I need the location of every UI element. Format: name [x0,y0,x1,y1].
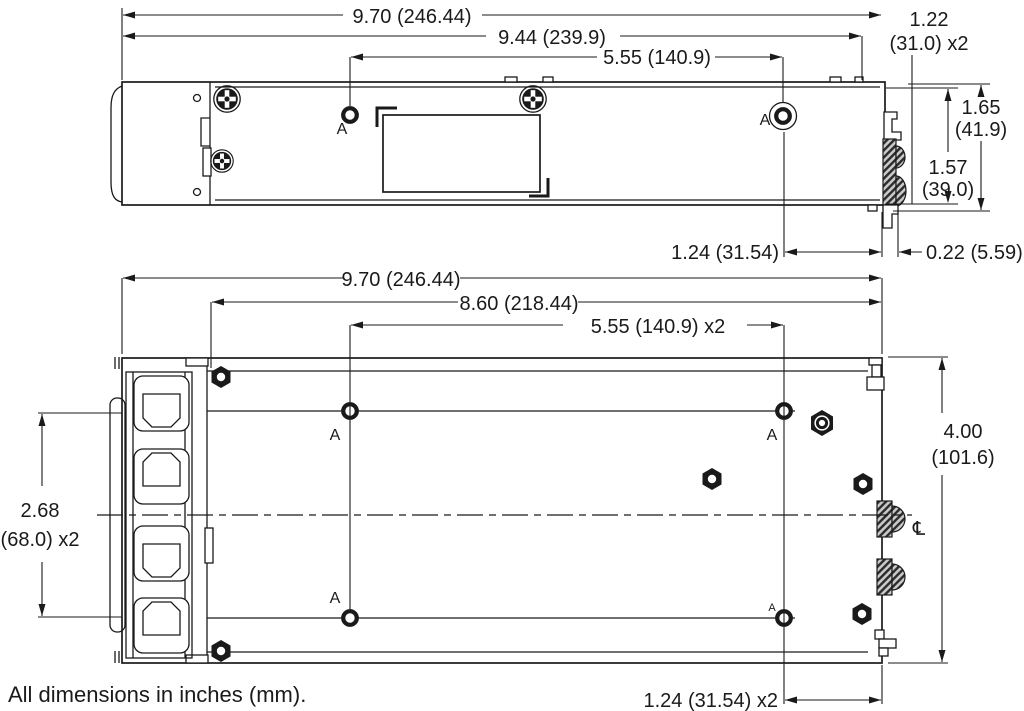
dim-plan-1-24: 1.24 (31.54) x2 [643,690,778,711]
dim-side-9-44: 9.44 (239.9) [498,27,606,49]
hole-label-a-plan-bl: A [330,590,341,607]
plan-right-end [867,358,905,656]
dim-side-1-65-b: (41.9) [955,119,1007,141]
dim-plan-2-68-a: 2.68 [21,500,60,522]
dim-side-overall: 9.70 (246.44) [353,6,472,28]
dim-side-5-55: 5.55 (140.9) [603,47,711,69]
plan-view-outline [110,357,882,663]
dim-side-1-22-a: 1.22 [910,9,949,31]
dim-plan-overall: 9.70 (246.44) [342,269,461,291]
dim-side-1-57-b: (39.0) [922,179,974,201]
centerline-symbol: ℄ [912,519,926,540]
plan-view: 9.70 (246.44) 8.60 (218.44) 5.55 (140.9)… [1,269,995,711]
dim-side-1-57-a: 1.57 [929,157,968,179]
dim-plan-8-60: 8.60 (218.44) [460,293,579,315]
dim-plan-2-68-b: (68.0) x2 [1,529,80,551]
hole-label-a-plan-tr: A [767,427,778,444]
dim-plan-4-00-b: (101.6) [931,447,994,469]
hole-label-a-plan-br: A [768,602,776,614]
dimensions-note: All dimensions in inches (mm). [8,682,306,707]
dim-plan-5-55: 5.55 (140.9) x2 [591,316,726,338]
side-screws [211,86,546,172]
dim-side-1-24: 1.24 (31.54) [671,242,779,264]
label-window [377,108,548,196]
dim-plan-4-00-a: 4.00 [944,421,983,443]
side-view: 9.70 (246.44) 9.44 (239.9) 5.55 (140.9) … [111,6,1023,264]
hole-label-a-side-right: A [760,112,771,129]
side-holes [343,103,796,130]
dim-side-1-65-a: 1.65 [962,97,1001,119]
dim-side-1-22-b: (31.0) x2 [890,33,969,55]
dim-side-0-22: 0.22 (5.59) [926,242,1023,264]
engineering-drawing: 9.70 (246.44) 9.44 (239.9) 5.55 (140.9) … [0,0,1024,711]
hole-label-a-side-left: A [337,121,348,138]
side-dimension-labels: 9.70 (246.44) 9.44 (239.9) 5.55 (140.9) … [337,6,1023,264]
hole-label-a-plan-tl: A [330,427,341,444]
